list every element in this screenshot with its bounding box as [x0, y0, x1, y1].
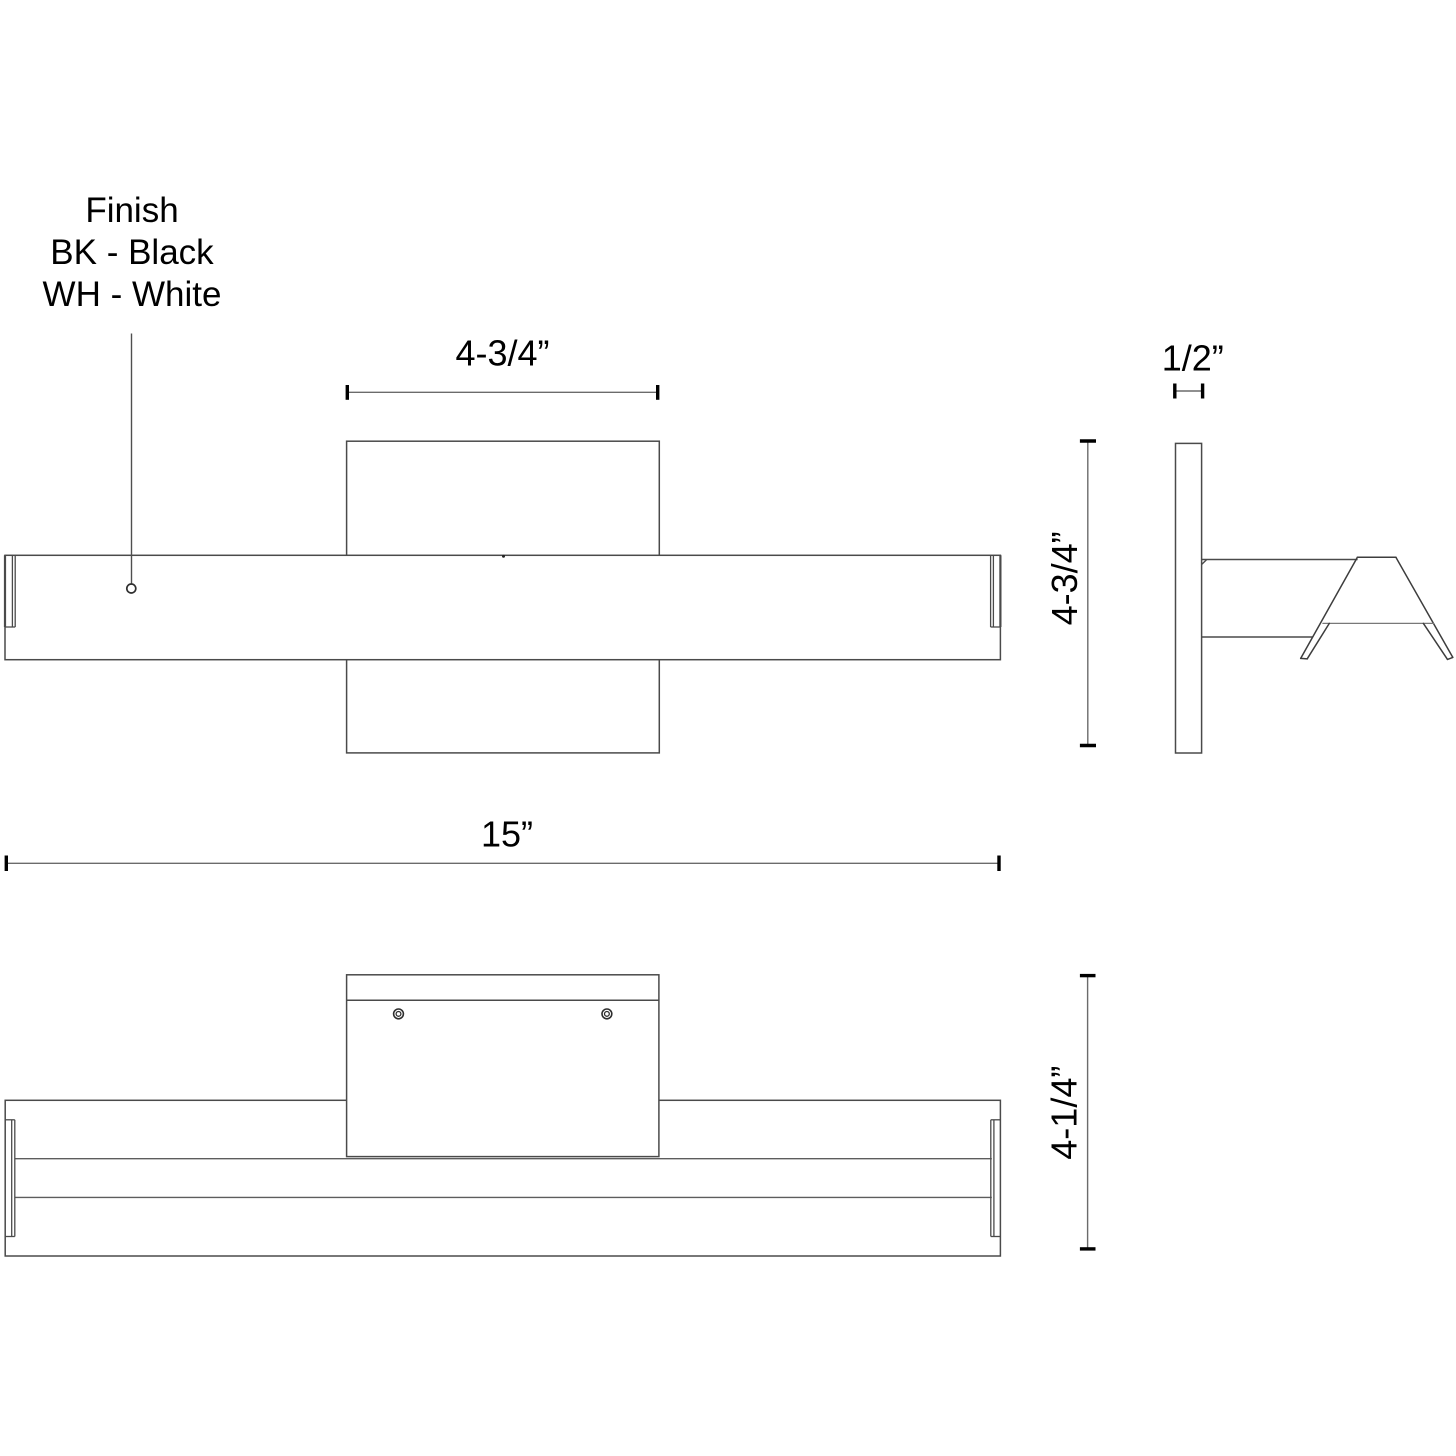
svg-text:WH - White: WH - White — [43, 275, 222, 314]
svg-text:BK - Black: BK - Black — [50, 233, 214, 272]
svg-text:4-3/4”: 4-3/4” — [1044, 531, 1085, 625]
svg-text:4-3/4”: 4-3/4” — [455, 333, 549, 374]
svg-text:4-1/4”: 4-1/4” — [1044, 1066, 1085, 1160]
svg-text:15”: 15” — [481, 814, 533, 855]
svg-text:Finish: Finish — [85, 191, 178, 230]
svg-text:1/2”: 1/2” — [1162, 337, 1224, 378]
